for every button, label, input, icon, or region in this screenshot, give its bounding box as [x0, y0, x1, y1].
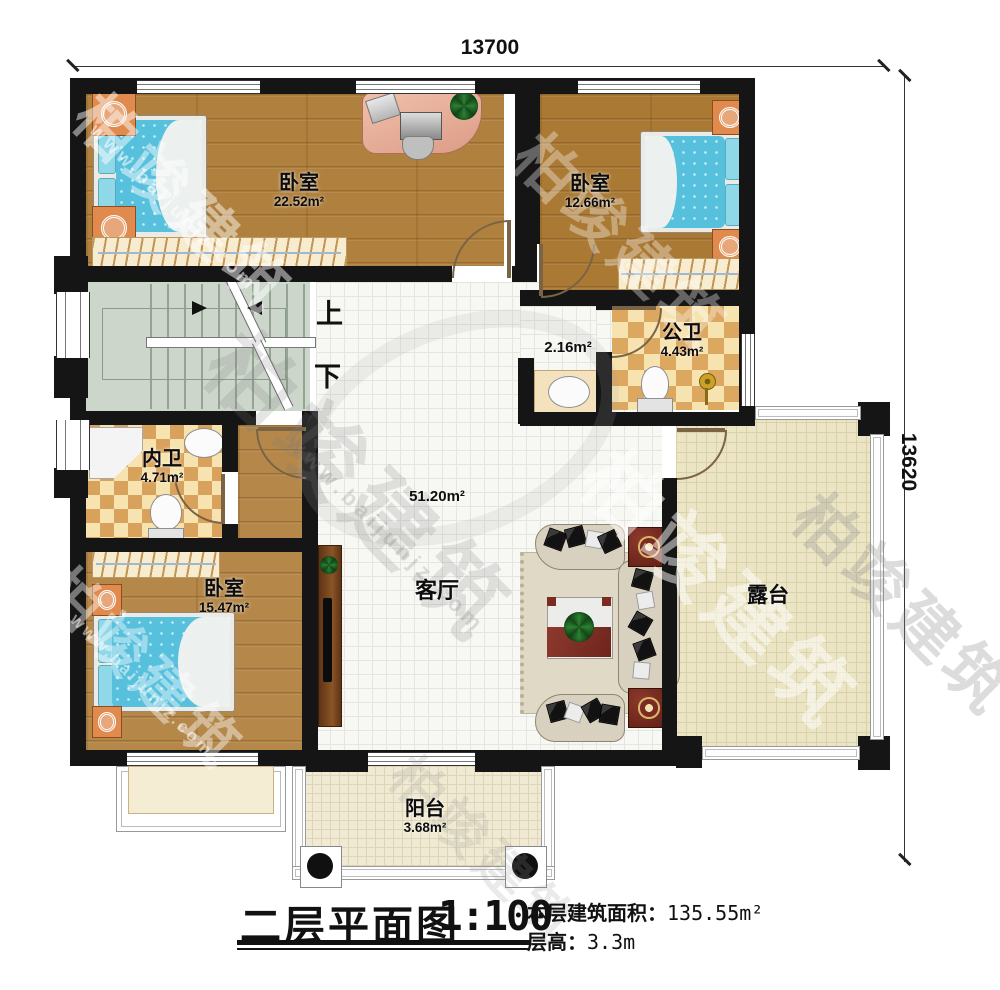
dimension-top-label: 13700 [430, 36, 550, 60]
label-niche-area: 2.16m² [518, 340, 618, 355]
wall-pilaster [54, 356, 88, 398]
wardrobe [92, 237, 347, 269]
window [56, 292, 90, 358]
floor-plan: 13700 13620 柏竣建筑 www.baijunjz.com 柏竣建筑 w… [0, 0, 1000, 990]
dimension-tick [898, 853, 911, 866]
bay-window-opening [127, 752, 258, 766]
window [356, 80, 475, 94]
drain-stem [705, 388, 708, 405]
floor-area-stat: 本层建筑面积：135.55m² [527, 897, 763, 926]
stairs-arrow-right [192, 301, 207, 315]
room-label-balcony: 阳台 3.68m² [375, 798, 475, 835]
nightstand [92, 706, 122, 738]
coffee-table-corner [602, 597, 611, 606]
room-label-bedroom-top-right: 卧室 12.66m² [540, 173, 640, 210]
door-leaf-public-bath [612, 306, 656, 310]
wall-under-stairs-a [70, 411, 256, 425]
room-label-bedroom-bottom-left: 卧室 15.47m² [174, 578, 274, 615]
room-label-private-bathroom: 内卫 4.71m² [112, 448, 212, 485]
wardrobe [618, 258, 741, 290]
title-underline-thick [237, 940, 530, 945]
sofa-pillow [636, 591, 656, 611]
terrace-column [858, 736, 890, 770]
terrace-column [676, 736, 702, 768]
room-label-living-room: 客厅 [387, 580, 487, 602]
window [56, 420, 90, 470]
potted-plant [450, 92, 478, 120]
stairs-handrail [146, 337, 316, 348]
wall-bath-left-stub [596, 306, 612, 310]
dimension-line-top [72, 66, 884, 67]
stairs-down-label: 下 [314, 355, 341, 394]
wall-private-bath-right-a [222, 425, 238, 472]
door-leaf-terrace [677, 428, 725, 432]
dimension-tick [898, 69, 911, 82]
toilet-bowl [150, 494, 182, 530]
cabinet-plant [320, 556, 338, 574]
balcony-column [307, 853, 333, 879]
table-plant [564, 612, 594, 642]
nightstand [92, 92, 136, 136]
stairs-arrow-left [247, 301, 262, 315]
terrace-column [858, 402, 890, 436]
wall-stub [475, 750, 548, 772]
terrace-railing-top [755, 406, 861, 420]
room-label-bedroom-top-left: 卧室 22.52m² [249, 172, 349, 209]
window [741, 334, 755, 406]
wall-bedroom2-left-upper [524, 94, 540, 244]
title-underline-thin [237, 948, 530, 950]
sofa-pillow [632, 661, 650, 679]
wall-terrace-divider [662, 478, 677, 750]
door-leaf-bedroom1 [507, 220, 511, 278]
floor-height-stat: 层高：3.3m [527, 926, 635, 955]
terrace-railing-right [870, 434, 884, 740]
room-label-terrace: 露台 [718, 585, 818, 607]
coffee-table-corner [547, 597, 556, 606]
terrace-railing-bottom [702, 746, 860, 760]
wall-private-bath-bottom [70, 538, 302, 552]
bed [93, 612, 235, 712]
window [137, 80, 260, 94]
sofa-pillow [598, 703, 620, 725]
wall-pilaster [54, 256, 88, 294]
balcony-door-window [368, 752, 475, 766]
door-leaf-bedroom3 [258, 427, 306, 431]
stairs-up-label: 上 [316, 292, 343, 331]
door-leaf-bedroom2 [539, 244, 543, 296]
balcony-column [512, 853, 538, 879]
room-label-public-bathroom: 公卫 4.43m² [632, 322, 732, 359]
dimension-right-label: 13620 [896, 422, 920, 502]
bed [640, 131, 748, 233]
nightstand [92, 584, 122, 616]
wardrobe [92, 550, 220, 578]
wall-private-bath-right-b [222, 524, 238, 538]
bay-window-seat [128, 766, 274, 814]
toilet-tank [637, 398, 673, 413]
wall-pilaster [54, 468, 88, 498]
wall-bedroom1-bottom [86, 266, 452, 282]
label-living-room-area: 51.20m² [387, 489, 487, 504]
door-leaf-private-bath [221, 474, 225, 524]
tv [323, 598, 332, 682]
toilet-bowl [641, 366, 669, 402]
wall-stub [300, 750, 368, 772]
window [578, 80, 700, 94]
